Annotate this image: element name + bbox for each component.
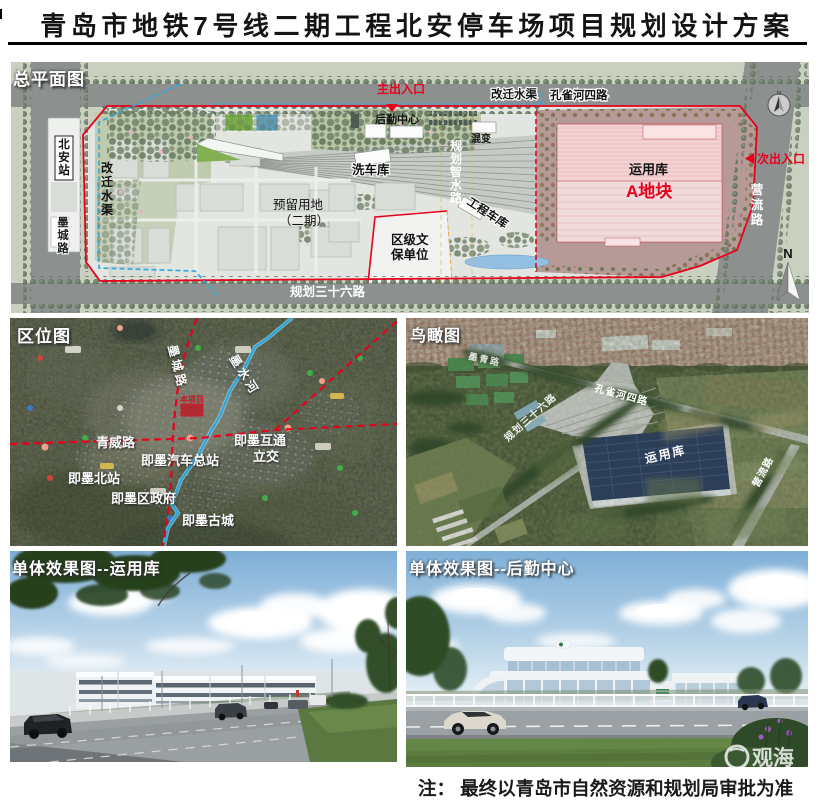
svg-text:次出入口: 次出入口	[757, 151, 805, 166]
svg-text:即墨互通: 即墨互通	[234, 433, 286, 448]
svg-text:本项目: 本项目	[179, 394, 204, 404]
svg-text:A地块: A地块	[626, 181, 673, 201]
svg-text:后勤中心: 后勤中心	[375, 112, 419, 126]
svg-text:预留用地: 预留用地	[273, 198, 324, 212]
svg-text:区级文: 区级文	[391, 232, 429, 247]
svg-text:混变: 混变	[471, 132, 491, 145]
svg-text:主出入口: 主出入口	[377, 81, 425, 96]
svg-text:N: N	[777, 91, 781, 97]
svg-text:改迁水渠: 改迁水渠	[491, 87, 537, 101]
svg-text:北安站: 北安站	[58, 137, 70, 177]
svg-text:改迁水渠: 改迁水渠	[101, 160, 114, 217]
svg-text:规划智水路: 规划智水路	[449, 138, 463, 205]
svg-text:N: N	[783, 246, 792, 261]
svg-text:立交: 立交	[253, 449, 279, 464]
svg-text:即墨区政府: 即墨区政府	[111, 491, 176, 506]
svg-text:洗车库: 洗车库	[352, 162, 390, 177]
svg-text:营流路: 营流路	[751, 182, 764, 227]
svg-text:青威路: 青威路	[96, 435, 136, 450]
svg-text:即墨古城: 即墨古城	[182, 513, 234, 528]
svg-text:即墨汽车总站: 即墨汽车总站	[141, 453, 219, 468]
svg-text:运用库: 运用库	[629, 162, 668, 177]
svg-text:观海: 观海	[752, 746, 794, 767]
svg-text:保单位: 保单位	[390, 247, 429, 262]
svg-text:（二期）: （二期）	[279, 214, 329, 228]
svg-text:即墨北站: 即墨北站	[68, 471, 120, 486]
svg-text:孔雀河四路: 孔雀河四路	[550, 88, 608, 102]
svg-text:墨城路: 墨城路	[57, 216, 69, 255]
svg-text:规划三十六路: 规划三十六路	[290, 284, 366, 299]
